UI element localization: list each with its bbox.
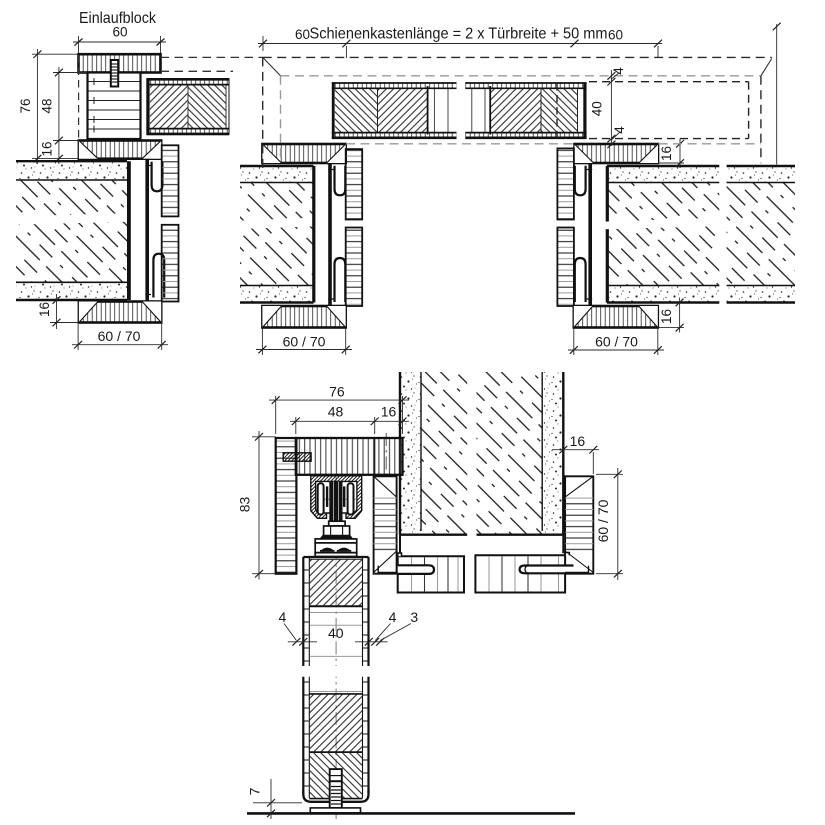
svg-text:48: 48	[40, 98, 55, 113]
svg-text:16: 16	[659, 309, 674, 324]
svg-text:4: 4	[279, 609, 287, 625]
svg-text:76: 76	[18, 98, 33, 113]
svg-text:16: 16	[37, 302, 52, 317]
svg-text:4: 4	[389, 609, 397, 625]
svg-text:16: 16	[40, 141, 55, 156]
svg-text:16: 16	[570, 433, 586, 449]
svg-text:3: 3	[410, 609, 418, 625]
svg-text:60 / 70: 60 / 70	[595, 334, 638, 350]
svg-text:60 / 70: 60 / 70	[595, 499, 611, 542]
svg-text:60: 60	[608, 28, 623, 43]
svg-text:48: 48	[328, 404, 344, 420]
svg-text:16: 16	[381, 404, 397, 420]
svg-text:16: 16	[659, 146, 674, 161]
svg-text:7: 7	[247, 787, 263, 795]
svg-text:40: 40	[590, 101, 605, 116]
svg-text:60 / 70: 60 / 70	[98, 328, 141, 344]
svg-text:60 / 70: 60 / 70	[283, 334, 326, 350]
svg-text:60: 60	[112, 25, 127, 40]
svg-text:Schienenkastenlänge = 2 x Türb: Schienenkastenlänge = 2 x Türbreite + 50…	[310, 26, 608, 43]
svg-text:40: 40	[328, 625, 344, 641]
svg-text:76: 76	[329, 384, 345, 400]
svg-text:83: 83	[237, 497, 253, 513]
svg-text:60: 60	[295, 27, 310, 42]
